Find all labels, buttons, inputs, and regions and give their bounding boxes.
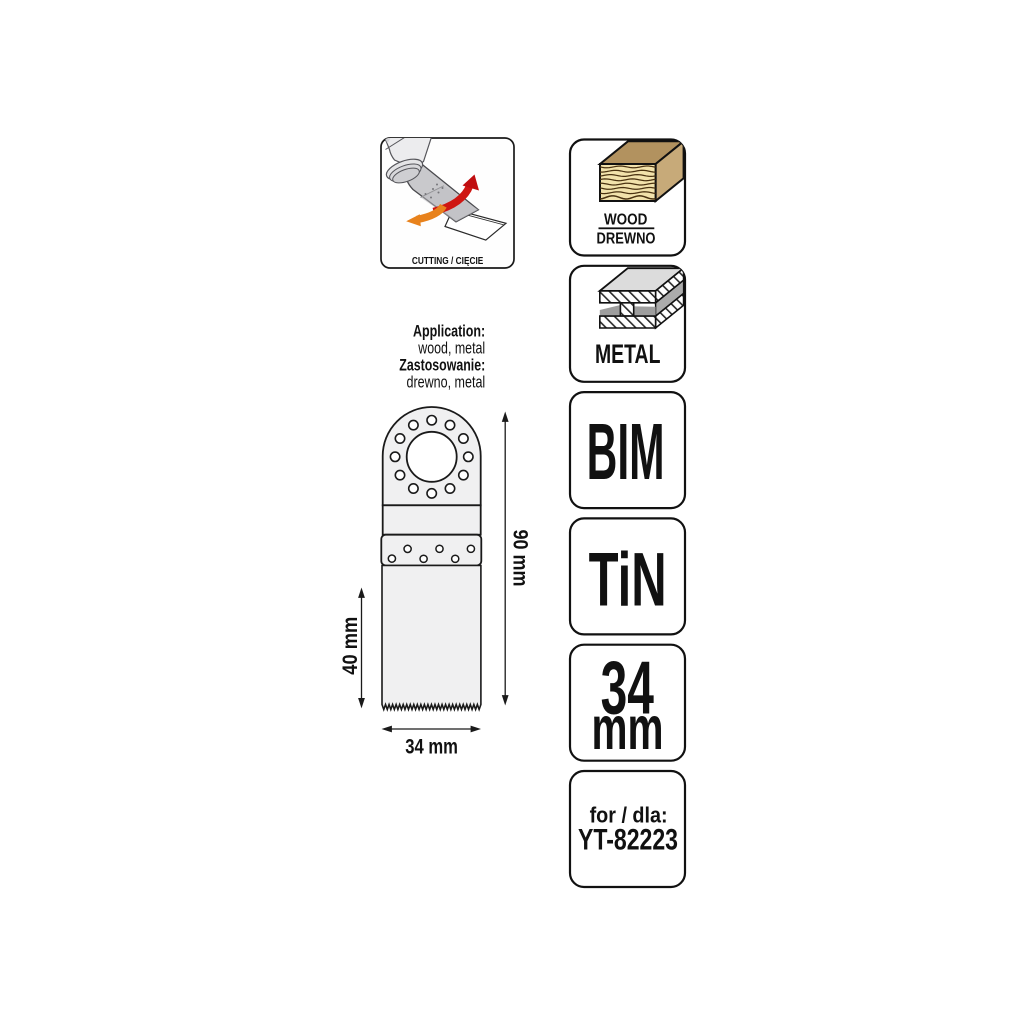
svg-text:90 mm: 90 mm <box>509 530 533 587</box>
svg-text:TiN: TiN <box>589 538 667 623</box>
svg-text:YT-82223: YT-82223 <box>578 824 678 857</box>
svg-text:BIM: BIM <box>587 407 665 496</box>
svg-text:CUTTING / CIĘCIE: CUTTING / CIĘCIE <box>412 255 483 267</box>
svg-text:mm: mm <box>592 694 664 762</box>
svg-text:wood, metal: wood, metal <box>418 338 486 357</box>
svg-text:drewno, metal: drewno, metal <box>407 372 486 391</box>
svg-text:34 mm: 34 mm <box>405 735 458 759</box>
svg-text:DREWNO: DREWNO <box>597 231 656 248</box>
svg-text:METAL: METAL <box>595 339 661 369</box>
svg-text:40 mm: 40 mm <box>338 617 362 675</box>
svg-text:WOOD: WOOD <box>604 211 648 228</box>
